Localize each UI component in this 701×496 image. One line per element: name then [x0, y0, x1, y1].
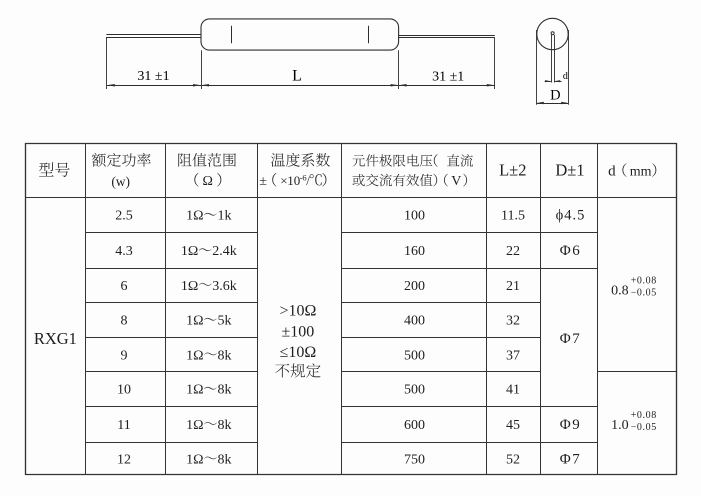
svg-text:500: 500 [404, 383, 425, 398]
svg-text:>10Ω: >10Ω [279, 303, 316, 320]
svg-text:8k: 8k [218, 383, 232, 398]
svg-text:1Ω: 1Ω [181, 244, 198, 259]
svg-text:0.8: 0.8 [611, 284, 629, 299]
svg-text:12: 12 [117, 452, 131, 467]
svg-text:≤10Ω: ≤10Ω [280, 344, 317, 361]
svg-text:Φ7: Φ7 [560, 451, 581, 467]
svg-text:(w): (w) [111, 174, 130, 189]
svg-text:41: 41 [506, 383, 520, 398]
svg-text:2.4k: 2.4k [212, 244, 237, 259]
svg-text:31 ±1: 31 ±1 [137, 69, 169, 84]
svg-text:Φ9: Φ9 [560, 417, 581, 433]
svg-text:45: 45 [506, 418, 520, 433]
svg-text:V: V [451, 174, 461, 189]
svg-text:750: 750 [404, 452, 425, 467]
svg-text:8k: 8k [218, 348, 232, 363]
svg-text:1Ω: 1Ω [186, 418, 203, 433]
svg-text:400: 400 [404, 314, 425, 329]
svg-text:1Ω: 1Ω [186, 383, 203, 398]
svg-text:+0.08: +0.08 [631, 410, 657, 421]
svg-text:Φ7: Φ7 [560, 331, 581, 347]
svg-text:6: 6 [121, 279, 128, 294]
svg-text:21: 21 [506, 279, 520, 294]
svg-text:D: D [550, 87, 560, 103]
svg-text:mm: mm [630, 165, 652, 180]
svg-text:8: 8 [121, 314, 128, 329]
svg-text:2.5: 2.5 [115, 209, 133, 224]
svg-text:8k: 8k [218, 418, 232, 433]
svg-text:160: 160 [404, 244, 425, 259]
svg-text:/: / [306, 173, 310, 188]
svg-text:1Ω: 1Ω [186, 452, 203, 467]
svg-text:32: 32 [506, 314, 520, 329]
svg-text:RXG1: RXG1 [34, 329, 77, 348]
svg-text:3.6k: 3.6k [212, 279, 237, 294]
svg-text:10: 10 [287, 173, 300, 188]
svg-text:−0.05: −0.05 [631, 287, 657, 298]
svg-text:−0.05: −0.05 [631, 422, 657, 433]
svg-text:±: ± [259, 174, 267, 189]
svg-text:L±2: L±2 [499, 161, 526, 180]
svg-text:37: 37 [506, 348, 520, 363]
svg-text:1.0: 1.0 [611, 418, 629, 433]
svg-text:22: 22 [506, 244, 520, 259]
svg-text:1Ω: 1Ω [186, 209, 203, 224]
svg-text:Ω: Ω [203, 174, 213, 189]
svg-text:500: 500 [404, 348, 425, 363]
svg-text:Φ6: Φ6 [560, 243, 581, 259]
svg-text:d: d [608, 164, 616, 180]
svg-text:8k: 8k [218, 452, 232, 467]
svg-text:ϕ4.5: ϕ4.5 [556, 208, 586, 224]
svg-text:10: 10 [117, 383, 131, 398]
svg-text:9: 9 [121, 348, 128, 363]
svg-text:31 ±1: 31 ±1 [432, 70, 464, 85]
svg-text:200: 200 [404, 279, 425, 294]
svg-text:11: 11 [117, 418, 130, 433]
svg-text:5k: 5k [218, 314, 232, 329]
svg-text:4.3: 4.3 [115, 244, 133, 259]
svg-text:±100: ±100 [282, 323, 315, 340]
svg-text:L: L [292, 68, 302, 85]
svg-text:1Ω: 1Ω [186, 314, 203, 329]
svg-text:1Ω: 1Ω [186, 348, 203, 363]
svg-text:+0.08: +0.08 [631, 276, 657, 287]
svg-text:52: 52 [506, 452, 520, 467]
svg-text:1Ω: 1Ω [181, 279, 198, 294]
svg-text:1k: 1k [218, 209, 232, 224]
svg-text:D±1: D±1 [555, 161, 584, 180]
svg-text:11.5: 11.5 [501, 209, 525, 224]
svg-text:600: 600 [404, 418, 425, 433]
svg-text:d: d [563, 71, 568, 82]
svg-text:100: 100 [404, 209, 425, 224]
